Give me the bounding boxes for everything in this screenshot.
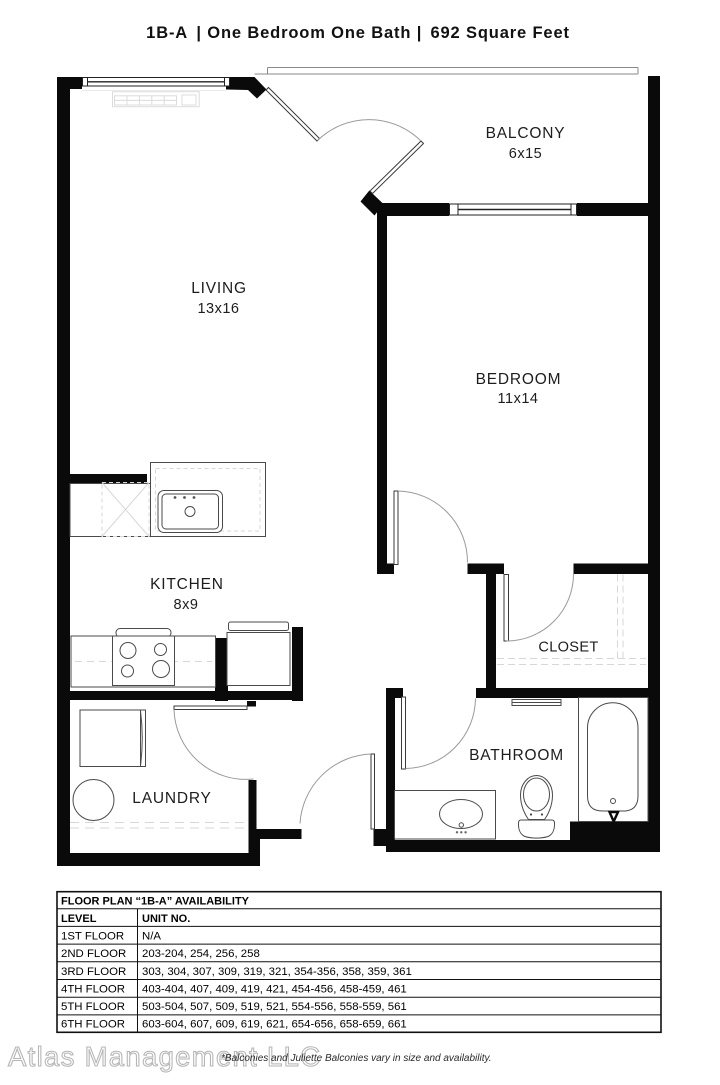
svg-text:N/A: N/A <box>142 931 161 943</box>
svg-text:11x14: 11x14 <box>498 391 539 407</box>
svg-text:2ND FLOOR: 2ND FLOOR <box>61 948 126 960</box>
svg-text:13x16: 13x16 <box>197 301 239 317</box>
svg-text:3RD FLOOR: 3RD FLOOR <box>61 966 126 978</box>
svg-text:6TH FLOOR: 6TH FLOOR <box>61 1019 125 1031</box>
svg-text:KITCHEN: KITCHEN <box>150 576 224 593</box>
svg-text:1ST FLOOR: 1ST FLOOR <box>61 931 124 943</box>
svg-text:203-204, 254, 256, 258: 203-204, 254, 256, 258 <box>142 948 260 960</box>
svg-text:5TH FLOOR: 5TH FLOOR <box>61 1001 125 1013</box>
svg-text:503-504, 507, 509, 519, 521, 5: 503-504, 507, 509, 519, 521, 554-556, 55… <box>142 1001 407 1013</box>
svg-text:BATHROOM: BATHROOM <box>469 747 564 764</box>
svg-text:4TH FLOOR: 4TH FLOOR <box>61 983 125 995</box>
svg-text:LIVING: LIVING <box>191 280 247 297</box>
svg-text:303, 304, 307, 309, 319, 321,: 303, 304, 307, 309, 319, 321, 354-356, 3… <box>142 966 412 978</box>
svg-text:FLOOR PLAN “1B-A” AVAILABILITY: FLOOR PLAN “1B-A” AVAILABILITY <box>61 896 250 908</box>
svg-text:6x15: 6x15 <box>509 146 542 162</box>
svg-text:1B-A | One Bedroom One Bath |: 1B-A | One Bedroom One Bath | 692 Square… <box>146 24 570 42</box>
svg-text:BEDROOM: BEDROOM <box>476 371 562 388</box>
svg-text:LAUNDRY: LAUNDRY <box>132 790 211 807</box>
svg-text:UNIT NO.: UNIT NO. <box>142 913 190 925</box>
svg-text:CLOSET: CLOSET <box>538 640 598 656</box>
svg-text:BALCONY: BALCONY <box>486 125 566 142</box>
svg-text:LEVEL: LEVEL <box>61 913 97 925</box>
svg-text:8x9: 8x9 <box>174 597 199 613</box>
svg-text:603-604, 607, 609, 619, 621, 6: 603-604, 607, 609, 619, 621, 654-656, 65… <box>142 1019 407 1031</box>
svg-text:403-404, 407, 409, 419, 421, 4: 403-404, 407, 409, 419, 421, 454-456, 45… <box>142 983 407 995</box>
svg-text:*Balconies and Juliette Balcon: *Balconies and Juliette Balconies vary i… <box>221 1053 492 1064</box>
